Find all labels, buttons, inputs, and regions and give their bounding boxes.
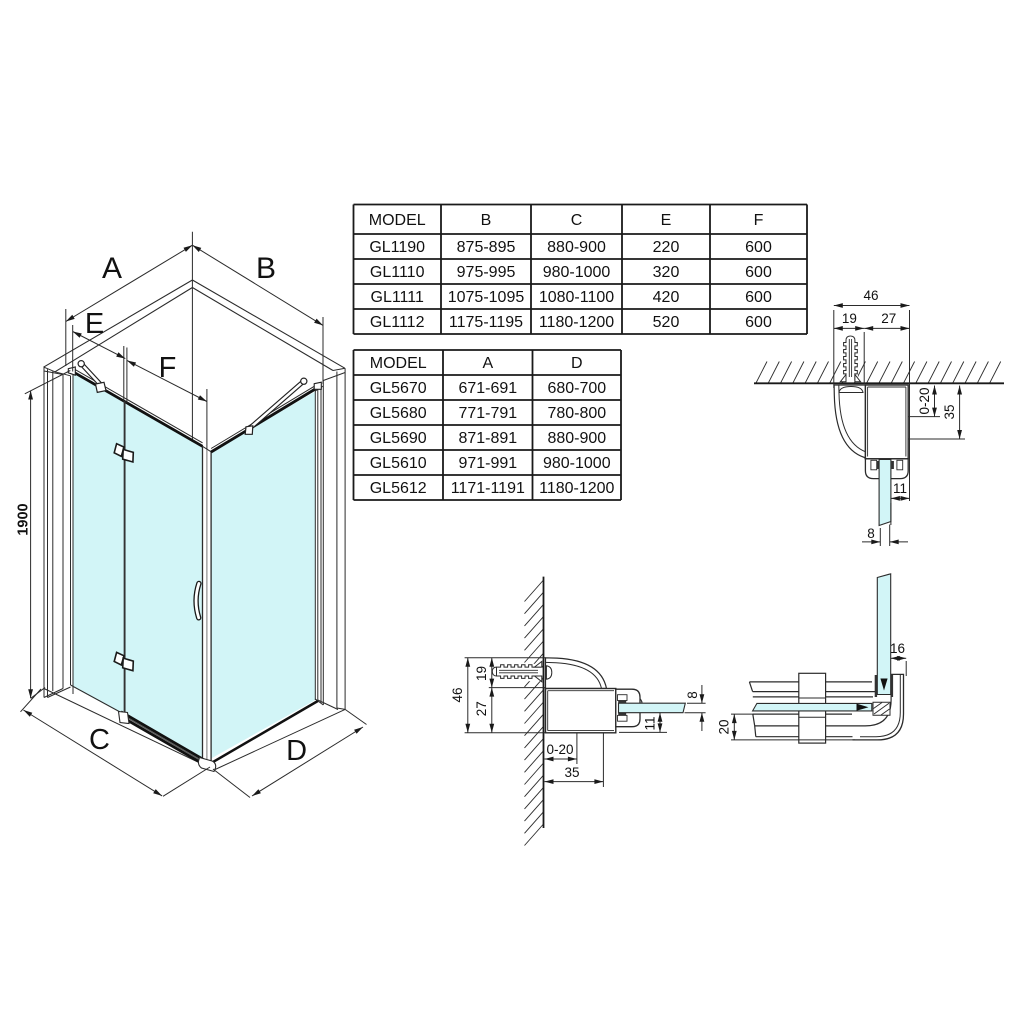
svg-text:975-995: 975-995	[457, 264, 516, 281]
svg-text:GL5612: GL5612	[370, 480, 427, 497]
svg-text:46: 46	[450, 687, 465, 702]
svg-text:880-900: 880-900	[547, 239, 606, 256]
svg-text:771-791: 771-791	[458, 405, 517, 422]
svg-text:F: F	[754, 212, 764, 229]
svg-text:1175-1195: 1175-1195	[449, 314, 523, 331]
svg-text:C: C	[571, 212, 583, 229]
svg-text:35: 35	[564, 765, 579, 780]
svg-text:871-891: 871-891	[458, 430, 517, 447]
svg-text:680-700: 680-700	[547, 380, 606, 397]
svg-text:16: 16	[890, 641, 905, 656]
svg-text:GL5670: GL5670	[370, 380, 427, 397]
svg-text:11: 11	[893, 481, 907, 496]
svg-text:B: B	[256, 252, 276, 285]
svg-text:671-691: 671-691	[458, 380, 517, 397]
svg-text:GL5690: GL5690	[370, 430, 427, 447]
svg-text:D: D	[571, 355, 583, 372]
svg-text:971-991: 971-991	[458, 455, 517, 472]
svg-text:880-900: 880-900	[547, 430, 606, 447]
svg-text:520: 520	[653, 314, 680, 331]
svg-text:420: 420	[653, 289, 680, 306]
svg-text:A: A	[482, 355, 493, 372]
svg-text:780-800: 780-800	[547, 405, 606, 422]
svg-text:20: 20	[717, 719, 732, 734]
svg-text:46: 46	[863, 288, 878, 303]
svg-text:1171-1191: 1171-1191	[451, 480, 525, 497]
svg-text:35: 35	[942, 404, 957, 419]
svg-text:27: 27	[474, 701, 489, 716]
svg-text:1075-1095: 1075-1095	[448, 289, 525, 306]
svg-text:1180-1200: 1180-1200	[539, 480, 614, 497]
svg-text:A: A	[102, 252, 122, 285]
svg-text:0-20: 0-20	[917, 387, 932, 414]
svg-text:600: 600	[745, 289, 772, 306]
svg-text:600: 600	[745, 264, 772, 281]
svg-text:980-1000: 980-1000	[543, 455, 611, 472]
svg-text:F: F	[159, 352, 177, 384]
svg-text:875-895: 875-895	[457, 239, 516, 256]
svg-text:C: C	[89, 724, 110, 756]
svg-text:GL5680: GL5680	[370, 405, 427, 422]
svg-text:1080-1100: 1080-1100	[539, 289, 614, 306]
svg-text:E: E	[661, 212, 672, 229]
svg-text:11: 11	[643, 716, 658, 730]
svg-text:19: 19	[842, 311, 857, 326]
svg-text:MODEL: MODEL	[370, 355, 427, 372]
svg-text:220: 220	[653, 239, 680, 256]
svg-text:0-20: 0-20	[546, 742, 573, 757]
svg-text:GL1112: GL1112	[370, 314, 425, 331]
svg-text:E: E	[85, 308, 104, 340]
svg-text:GL1190: GL1190	[369, 239, 425, 256]
svg-text:D: D	[286, 735, 307, 767]
svg-text:8: 8	[867, 526, 875, 541]
svg-text:320: 320	[653, 264, 680, 281]
svg-text:GL1110: GL1110	[370, 264, 425, 281]
svg-text:600: 600	[745, 314, 772, 331]
svg-text:B: B	[481, 212, 492, 229]
svg-text:19: 19	[474, 666, 489, 681]
svg-text:MODEL: MODEL	[369, 212, 426, 229]
svg-text:1900: 1900	[16, 503, 32, 535]
svg-text:600: 600	[745, 239, 772, 256]
svg-text:GL5610: GL5610	[370, 455, 427, 472]
svg-text:27: 27	[881, 311, 896, 326]
svg-text:GL1111: GL1111	[371, 289, 424, 306]
svg-text:980-1000: 980-1000	[543, 264, 611, 281]
svg-text:1180-1200: 1180-1200	[539, 314, 614, 331]
svg-text:8: 8	[685, 691, 700, 699]
